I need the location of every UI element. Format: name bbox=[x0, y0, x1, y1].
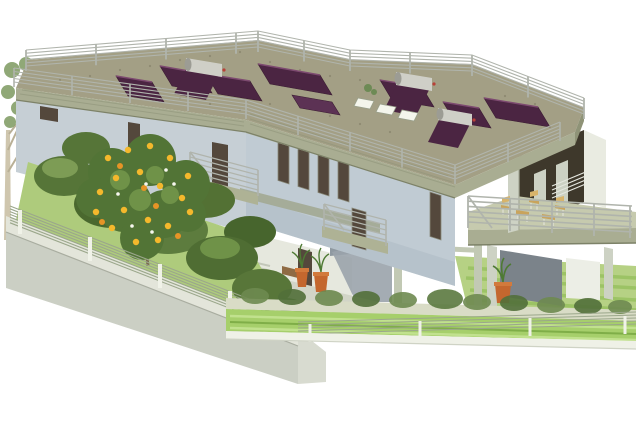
pot-body bbox=[314, 274, 328, 292]
architectural-rendering bbox=[0, 0, 640, 448]
fruit bbox=[121, 207, 127, 213]
pot-rim bbox=[494, 282, 512, 286]
fruit bbox=[165, 223, 171, 229]
blossom bbox=[144, 182, 148, 186]
right-end-wall bbox=[584, 130, 606, 208]
hedge-bush bbox=[463, 294, 491, 310]
canopy-light bbox=[110, 170, 130, 190]
speckle bbox=[179, 59, 181, 61]
speckle bbox=[239, 51, 241, 53]
leaf-cluster bbox=[1, 85, 15, 99]
hedge-bush bbox=[352, 291, 380, 307]
speckle bbox=[359, 123, 361, 125]
speckle bbox=[359, 79, 361, 81]
hedge-bush bbox=[241, 288, 269, 304]
fruit bbox=[93, 209, 99, 215]
hedge-bush bbox=[315, 290, 343, 306]
speckle bbox=[329, 115, 331, 117]
blossom bbox=[150, 230, 154, 234]
fruit bbox=[147, 143, 153, 149]
fruit bbox=[175, 233, 181, 239]
fruit bbox=[99, 219, 105, 225]
shrub-highlight bbox=[200, 237, 240, 259]
pot-rim bbox=[313, 272, 329, 276]
tank-cap bbox=[395, 72, 402, 85]
blossom bbox=[172, 182, 176, 186]
fruit bbox=[141, 185, 147, 191]
fruit bbox=[109, 225, 115, 231]
blossom bbox=[116, 192, 120, 196]
speckle bbox=[534, 103, 536, 105]
fruit bbox=[105, 155, 111, 161]
hedge-bush bbox=[427, 289, 463, 309]
under-terrace-light-wall bbox=[566, 258, 600, 300]
speckle bbox=[119, 69, 121, 71]
hedge-bush bbox=[389, 292, 417, 308]
tank-valve bbox=[432, 82, 435, 85]
fruit bbox=[167, 155, 173, 161]
speckle bbox=[504, 95, 506, 97]
tank-valve bbox=[222, 68, 225, 71]
fruit bbox=[125, 147, 131, 153]
shrub-highlight bbox=[42, 158, 78, 178]
blossom bbox=[164, 168, 168, 172]
rendering-canvas bbox=[0, 0, 640, 448]
tank-cap bbox=[437, 108, 444, 120]
tuft bbox=[371, 89, 377, 95]
fruit bbox=[113, 175, 119, 181]
fruit bbox=[153, 203, 159, 209]
speckle bbox=[149, 65, 151, 67]
speckle bbox=[269, 61, 271, 63]
speckle bbox=[269, 103, 271, 105]
fruit bbox=[157, 183, 163, 189]
fruit bbox=[117, 163, 123, 169]
pot-rim bbox=[295, 268, 309, 272]
pot-body bbox=[296, 270, 308, 287]
fruit bbox=[97, 189, 103, 195]
fruit bbox=[133, 239, 139, 245]
speckle bbox=[329, 75, 331, 77]
fruit bbox=[187, 209, 193, 215]
blossom bbox=[130, 224, 134, 228]
hedge-bush bbox=[278, 289, 306, 305]
canopy-light bbox=[161, 186, 179, 204]
speckle bbox=[89, 75, 91, 77]
hedge-bush bbox=[537, 297, 565, 313]
canopy-light bbox=[146, 166, 164, 184]
canopy-light bbox=[129, 189, 151, 211]
fruit bbox=[185, 173, 191, 179]
fruit bbox=[179, 195, 185, 201]
tall-window bbox=[430, 192, 441, 240]
hedge-bush bbox=[574, 298, 602, 314]
leaf-cluster bbox=[4, 116, 16, 128]
hedge-bush bbox=[500, 295, 528, 311]
speckle bbox=[209, 103, 211, 105]
tank-valve bbox=[472, 118, 475, 121]
fruit bbox=[137, 169, 143, 175]
tuft bbox=[364, 84, 372, 92]
speckle bbox=[209, 55, 211, 57]
tank-cap bbox=[185, 58, 192, 71]
fruit bbox=[155, 237, 161, 243]
fruit bbox=[145, 217, 151, 223]
speckle bbox=[389, 131, 391, 133]
terrace-leg-column bbox=[604, 247, 613, 300]
